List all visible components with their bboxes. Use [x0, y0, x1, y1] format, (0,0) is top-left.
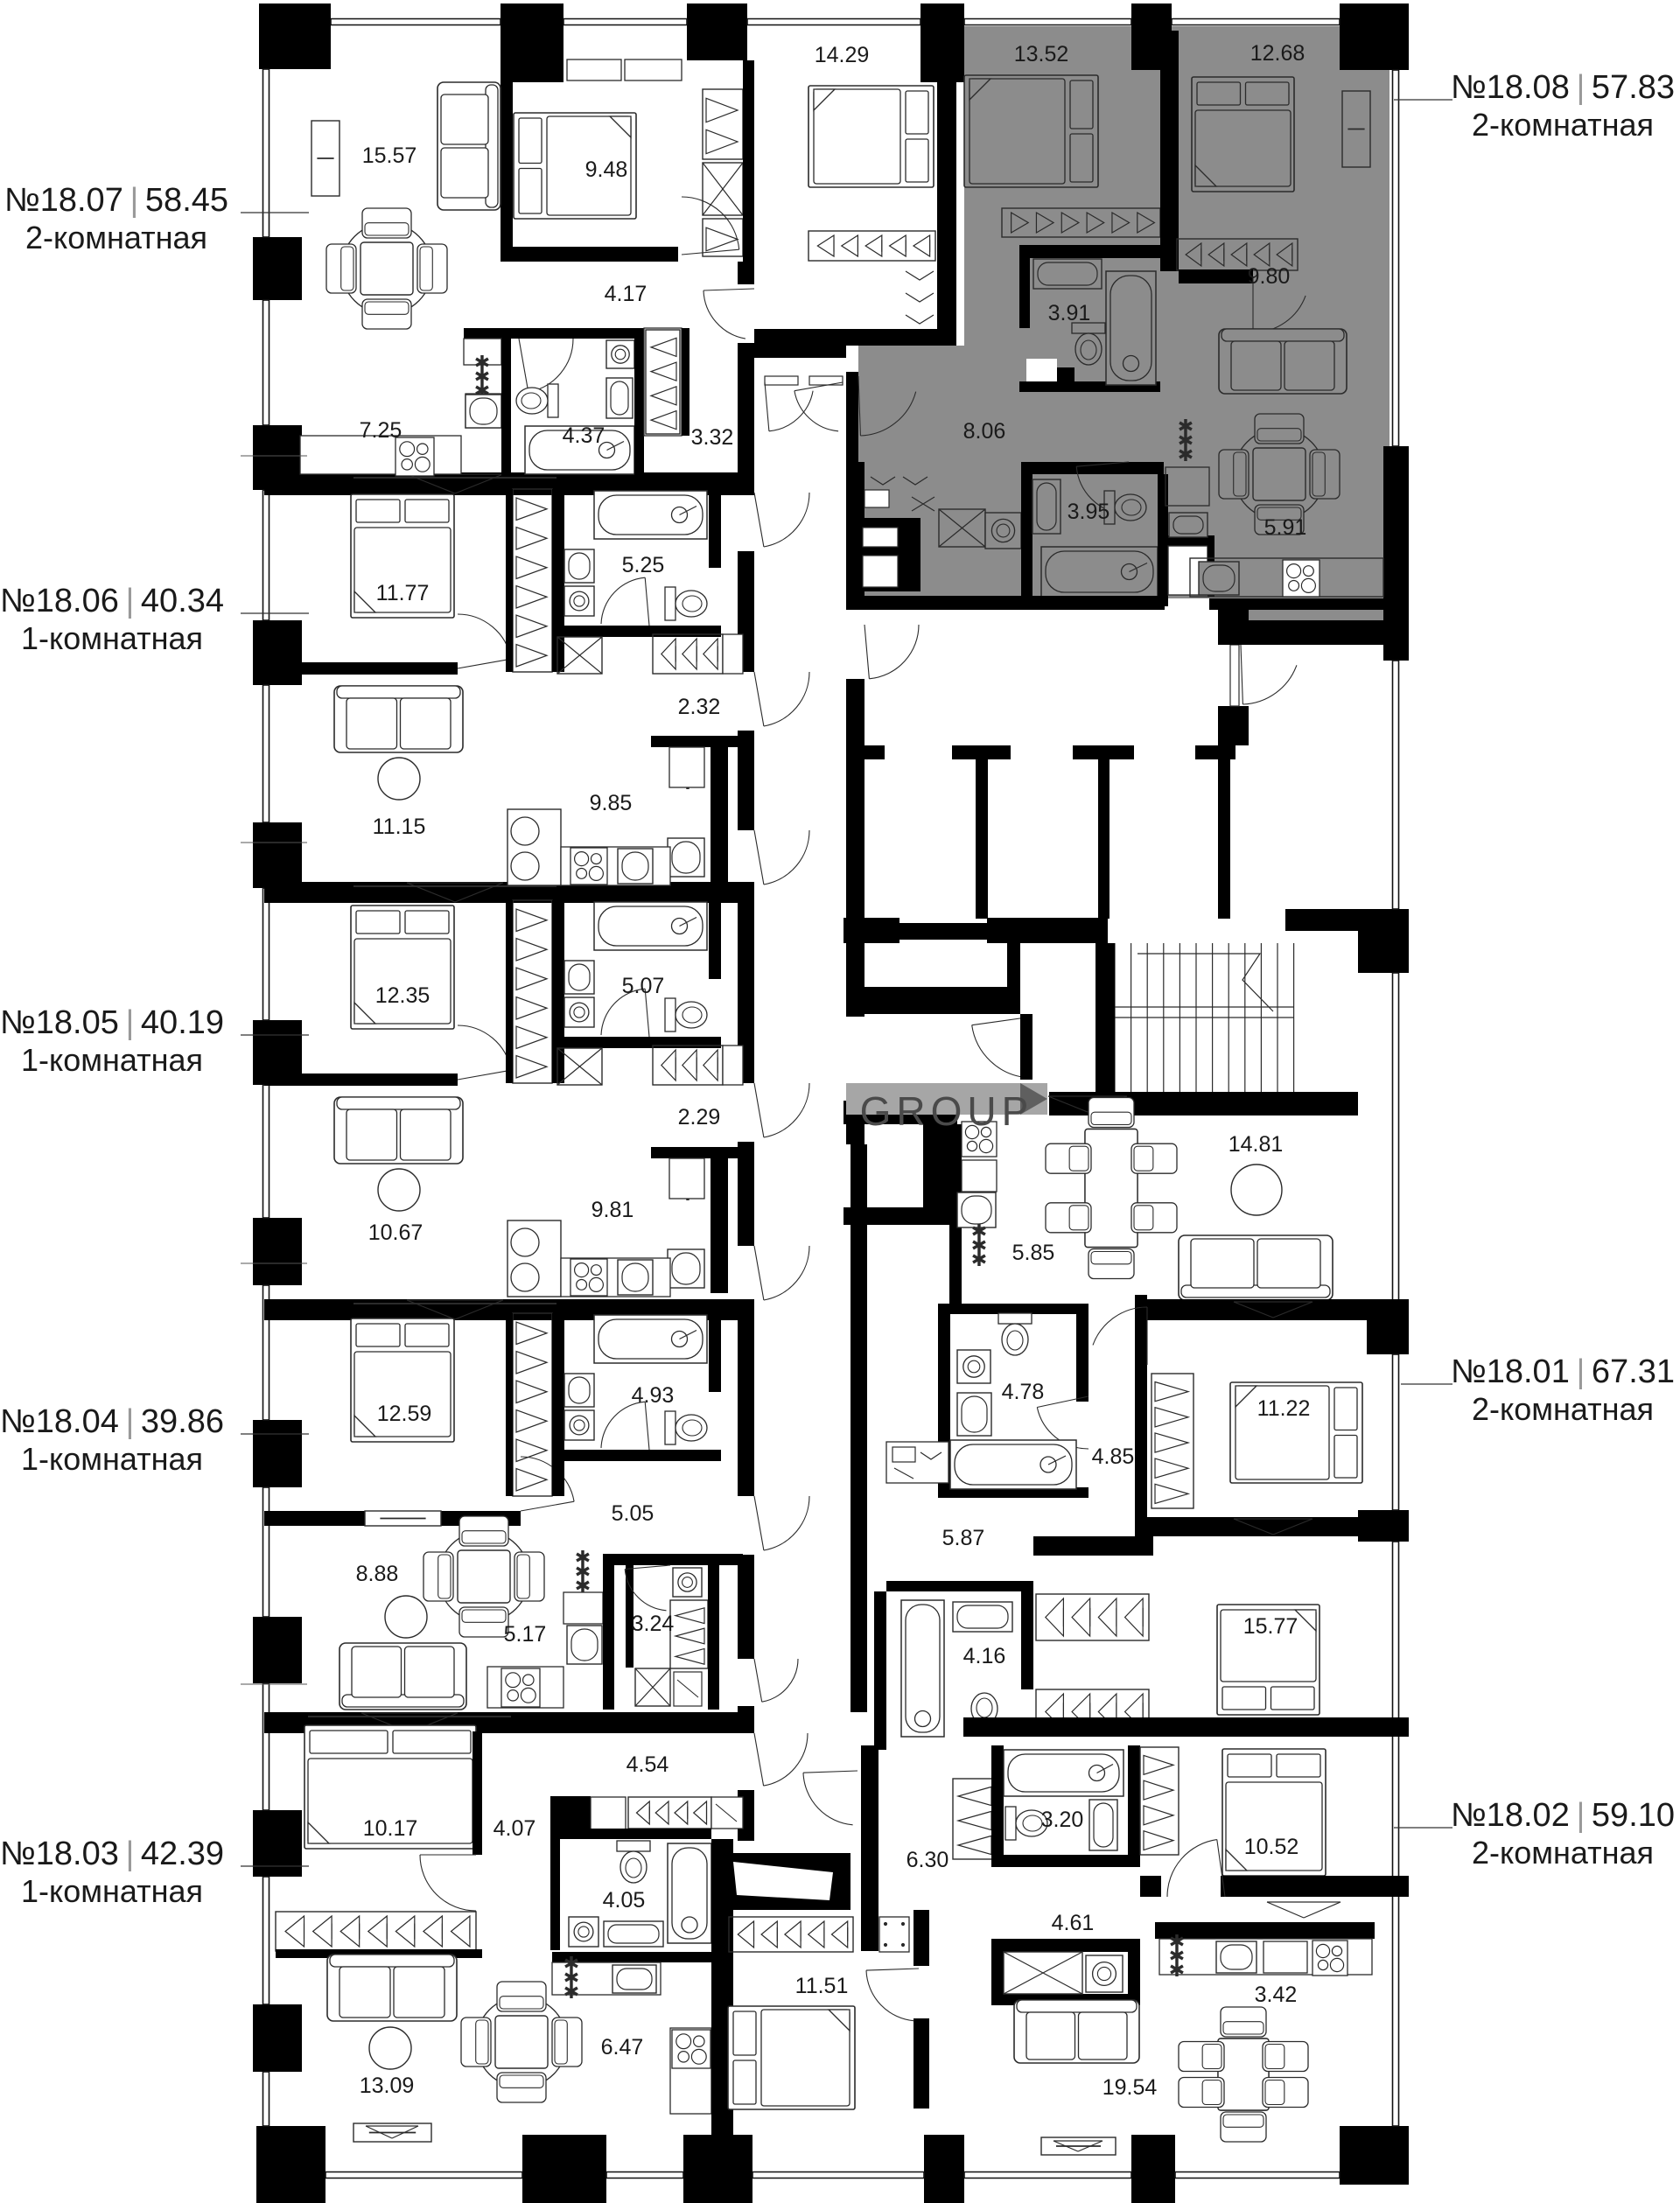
svg-text:11.77: 11.77: [376, 581, 430, 605]
svg-text:12.68: 12.68: [1250, 41, 1305, 66]
svg-text:№18.06 | 40.34: №18.06 | 40.34: [0, 583, 224, 619]
svg-text:4.05: 4.05: [603, 1888, 646, 1913]
svg-text:4.78: 4.78: [1002, 1380, 1045, 1404]
svg-text:2.29: 2.29: [678, 1105, 721, 1129]
svg-text:2.32: 2.32: [678, 695, 721, 719]
svg-text:10.67: 10.67: [368, 1220, 423, 1245]
svg-text:5.87: 5.87: [942, 1526, 985, 1550]
svg-text:№18.02 | 59.10: №18.02 | 59.10: [1451, 1797, 1675, 1834]
svg-text:2-комнатная: 2-комнатная: [1472, 107, 1654, 143]
svg-text:5.25: 5.25: [622, 553, 665, 577]
svg-text:12.35: 12.35: [375, 983, 430, 1008]
svg-text:5.05: 5.05: [612, 1501, 654, 1526]
svg-text:№18.03 | 42.39: №18.03 | 42.39: [0, 1836, 224, 1872]
svg-text:4.61: 4.61: [1052, 1911, 1095, 1935]
svg-text:2-комнатная: 2-комнатная: [25, 220, 207, 255]
svg-text:11.51: 11.51: [795, 1974, 849, 1998]
svg-text:9.48: 9.48: [585, 157, 628, 182]
svg-text:3.42: 3.42: [1255, 1983, 1298, 2007]
svg-text:4.54: 4.54: [626, 1752, 669, 1777]
svg-text:19.54: 19.54: [1102, 2075, 1158, 2100]
svg-text:15.57: 15.57: [362, 143, 417, 168]
svg-text:№18.01 | 67.31: №18.01 | 67.31: [1451, 1353, 1675, 1390]
svg-text:9.80: 9.80: [1248, 264, 1291, 289]
svg-text:5.85: 5.85: [1012, 1241, 1055, 1265]
svg-text:2-комнатная: 2-комнатная: [1472, 1391, 1654, 1427]
svg-text:2-комнатная: 2-комнатная: [1472, 1835, 1654, 1871]
svg-text:4.37: 4.37: [563, 423, 605, 448]
svg-text:1-комнатная: 1-комнатная: [21, 1441, 203, 1477]
svg-text:1-комнатная: 1-комнатная: [21, 620, 203, 656]
svg-text:5.17: 5.17: [504, 1622, 547, 1647]
svg-text:№18.04 | 39.86: №18.04 | 39.86: [0, 1403, 224, 1440]
svg-text:4.93: 4.93: [632, 1383, 675, 1408]
svg-text:4.07: 4.07: [493, 1816, 536, 1841]
svg-text:GROUP: GROUP: [860, 1088, 1034, 1134]
svg-text:6.47: 6.47: [601, 2035, 644, 2060]
svg-text:11.22: 11.22: [1257, 1396, 1311, 1421]
svg-text:№18.07 | 58.45: №18.07 | 58.45: [4, 182, 228, 219]
svg-text:✱: ✱: [971, 1248, 987, 1270]
svg-text:5.91: 5.91: [1264, 515, 1307, 540]
svg-text:10.17: 10.17: [363, 1816, 418, 1841]
svg-text:9.85: 9.85: [590, 791, 633, 815]
svg-text:6.30: 6.30: [906, 1848, 949, 1872]
svg-text:✱: ✱: [1169, 1959, 1185, 1981]
svg-text:4.16: 4.16: [963, 1644, 1006, 1668]
svg-text:14.81: 14.81: [1228, 1132, 1284, 1157]
svg-text:4.17: 4.17: [605, 282, 647, 306]
svg-text:№18.08 | 57.83: №18.08 | 57.83: [1451, 69, 1675, 106]
svg-text:5.07: 5.07: [622, 974, 665, 998]
svg-text:13.09: 13.09: [360, 2074, 415, 2098]
svg-text:11.15: 11.15: [373, 815, 426, 839]
svg-text:8.06: 8.06: [963, 419, 1006, 444]
svg-text:4.85: 4.85: [1092, 1444, 1135, 1469]
svg-text:✱: ✱: [563, 1981, 579, 2003]
svg-text:1-комнатная: 1-комнатная: [21, 1042, 203, 1078]
svg-text:13.52: 13.52: [1014, 42, 1069, 66]
svg-text:3.95: 3.95: [1067, 500, 1110, 524]
svg-text:9.81: 9.81: [591, 1198, 634, 1222]
svg-text:3.24: 3.24: [632, 1612, 675, 1636]
svg-text:14.29: 14.29: [815, 43, 870, 67]
svg-text:8.88: 8.88: [356, 1562, 399, 1586]
svg-text:1-комнатная: 1-комнатная: [21, 1873, 203, 1909]
svg-text:15.77: 15.77: [1243, 1614, 1298, 1639]
svg-text:3.91: 3.91: [1048, 301, 1091, 325]
svg-text:№18.05 | 40.19: №18.05 | 40.19: [0, 1004, 224, 1041]
svg-text:12.59: 12.59: [377, 1402, 432, 1426]
svg-text:3.32: 3.32: [691, 425, 734, 450]
svg-text:10.52: 10.52: [1244, 1835, 1299, 1859]
svg-text:3.20: 3.20: [1041, 1808, 1084, 1832]
svg-text:✱: ✱: [1178, 444, 1193, 465]
svg-text:7.25: 7.25: [360, 418, 402, 443]
